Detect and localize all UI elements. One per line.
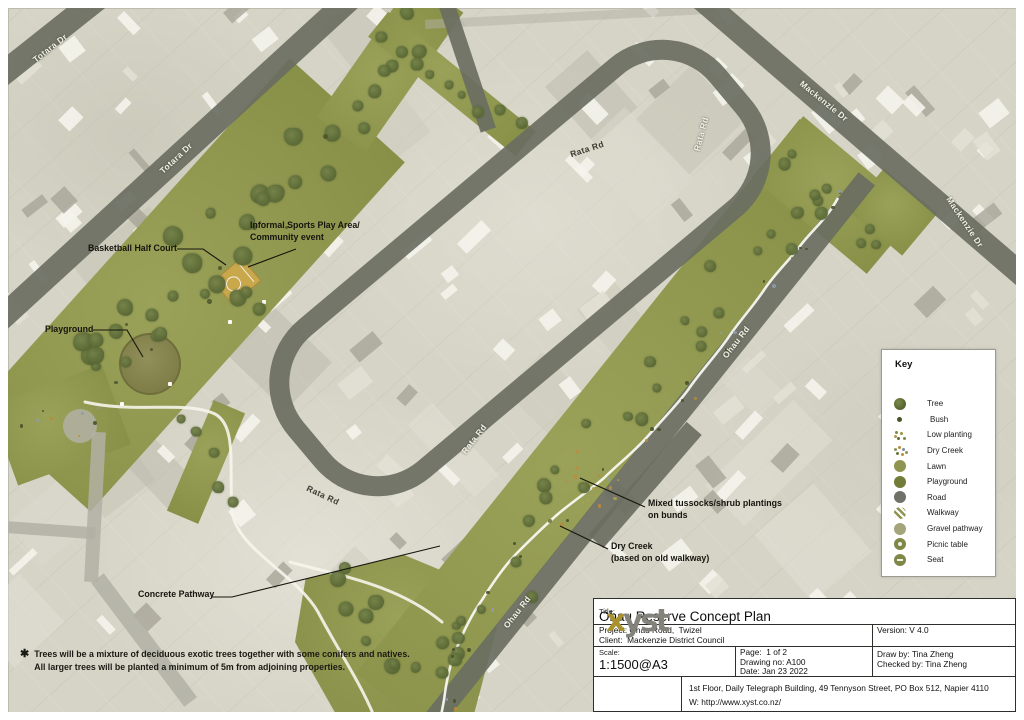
annotation-tussocks: Mixed tussocks/shrub plantingson bunds <box>648 498 782 521</box>
tree <box>324 125 341 142</box>
tree-notes: ✱ Trees will be a mixture of deciduous e… <box>20 648 410 674</box>
low-planting-speck <box>42 410 44 412</box>
tree <box>680 316 690 326</box>
tree <box>359 122 371 134</box>
tussock-speck <box>609 486 612 489</box>
tree <box>788 150 797 159</box>
tussock-speck <box>617 479 619 481</box>
key-row-gravel: Gravel pathway <box>893 521 991 537</box>
key-row-picnic: Picnic table <box>893 536 991 552</box>
tree <box>871 240 881 250</box>
tree <box>436 666 449 679</box>
tree <box>212 481 224 493</box>
tree <box>177 415 186 424</box>
key-label: Lawn <box>927 462 946 471</box>
key-label: Seat <box>927 555 943 564</box>
frame-bottom <box>0 712 1024 720</box>
tree <box>256 192 270 206</box>
key-row-bush: Bush <box>893 412 991 428</box>
tree <box>778 158 791 171</box>
creek-speck <box>452 648 455 651</box>
creek-speck <box>805 248 807 250</box>
key-label: Road <box>927 493 946 502</box>
tussock-speck <box>574 475 577 478</box>
walkway-icon <box>894 507 906 519</box>
tree <box>516 117 528 129</box>
key-panel: Key Tree Bush Low planting Dry Creek Law… <box>881 349 996 577</box>
tree <box>473 106 485 118</box>
tree <box>635 413 649 427</box>
tree <box>233 246 252 265</box>
tussock-speck <box>576 467 579 470</box>
company-address: 1st Floor, Daily Telegraph Building, 49 … <box>689 684 989 694</box>
creek-speck <box>763 280 766 283</box>
tree <box>396 46 408 58</box>
creek-speck <box>446 698 449 701</box>
divider <box>681 676 682 713</box>
key-title: Key <box>895 359 912 370</box>
tree <box>452 631 464 643</box>
annotation-basketball: Basketball Half Court <box>88 243 177 255</box>
creek-speck <box>453 699 457 703</box>
tree <box>436 636 450 650</box>
key-label: Gravel pathway <box>927 524 983 533</box>
key-label: Bush <box>930 415 948 424</box>
creek-speck <box>467 648 471 652</box>
frame-top <box>0 0 1024 8</box>
tussock-speck <box>576 450 579 453</box>
tree <box>358 608 373 623</box>
key-row-dry-creek: Dry Creek <box>893 443 991 459</box>
asterisk-icon: ✱ <box>20 648 29 674</box>
creek-speck <box>831 206 834 209</box>
bush-icon <box>897 417 902 422</box>
tree <box>856 238 866 248</box>
creek-speck <box>602 468 604 470</box>
key-label: Dry Creek <box>927 446 963 455</box>
tree <box>578 482 590 494</box>
lawn-icon <box>894 460 906 472</box>
key-label: Low planting <box>927 430 972 439</box>
creek-speck <box>454 707 457 710</box>
low-planting-speck <box>97 407 99 409</box>
creek-speck <box>681 399 684 402</box>
tree <box>766 230 775 239</box>
tree <box>120 357 131 368</box>
tree <box>361 636 371 646</box>
note-line-1: Trees will be a mixture of deciduous exo… <box>34 648 409 661</box>
tree <box>538 478 552 492</box>
checked-by-field: Checked by: Tina Zheng <box>877 660 967 670</box>
picnic-table-icon <box>894 538 906 550</box>
road-icon <box>894 491 906 503</box>
tree <box>400 6 414 20</box>
key-label: Walkway <box>927 508 959 517</box>
tree <box>644 356 656 368</box>
tussock-speck <box>596 494 598 496</box>
annotation-informal-sports: Informal Sports Play Area/Community even… <box>250 220 360 243</box>
tree <box>330 571 346 587</box>
low-planting-icon <box>894 429 906 441</box>
tussock-speck <box>566 480 568 482</box>
creek-speck <box>548 519 552 523</box>
frame-left <box>0 0 8 720</box>
bush <box>207 299 212 304</box>
creek-speck <box>650 427 654 431</box>
low-planting-speck <box>81 412 84 415</box>
frame-right <box>1016 0 1024 720</box>
annotation-dry-creek: Dry Creek(based on old walkway) <box>611 541 709 564</box>
creek-speck <box>519 555 522 558</box>
creek-speck <box>772 284 776 288</box>
tree <box>117 299 133 315</box>
tree <box>109 324 123 338</box>
tree <box>410 57 423 70</box>
playground-icon <box>894 476 906 488</box>
tree <box>338 602 353 617</box>
seat-marker <box>228 320 232 324</box>
tree <box>456 616 466 626</box>
scale-label: Scale: <box>599 648 620 657</box>
divider <box>594 646 1015 647</box>
tree <box>494 105 505 116</box>
bush <box>323 134 328 139</box>
low-planting-speck <box>50 417 53 420</box>
key-row-road: Road <box>893 490 991 506</box>
version-field: Version: V 4.0 <box>877 626 929 636</box>
tree <box>289 175 303 189</box>
key-row-seat: Seat <box>893 552 991 568</box>
tree <box>810 190 821 201</box>
key-row-playground: Playground <box>893 474 991 490</box>
tussock-speck <box>587 499 590 502</box>
dry-creek-icon <box>894 445 906 457</box>
key-rows: Tree Bush Low planting Dry Creek Lawn Pl… <box>893 396 991 568</box>
key-row-lawn: Lawn <box>893 458 991 474</box>
tree <box>581 419 591 429</box>
tree <box>205 207 216 218</box>
tussock-speck <box>582 501 584 503</box>
key-row-low-planting: Low planting <box>893 427 991 443</box>
tree <box>146 308 159 321</box>
title-block: Title: Ohau Reserve Concept Plan Project… <box>593 598 1016 712</box>
annotation-concrete-pathway: Concrete Pathway <box>138 589 214 601</box>
creek-speck <box>799 247 801 249</box>
scale-value: 1:1500@A3 <box>599 657 668 672</box>
low-planting-speck <box>20 424 24 428</box>
seat-icon <box>894 554 906 566</box>
key-row-tree: Tree <box>893 396 991 412</box>
tree <box>445 80 454 89</box>
note-line-2: All larger trees will be planted a minim… <box>34 661 409 674</box>
key-label: Tree <box>927 399 943 408</box>
gravel-pathway-icon <box>894 523 906 535</box>
company-website: W: http://www.xyst.co.nz/ <box>689 698 781 708</box>
key-label: Picnic table <box>927 540 968 549</box>
tree <box>191 426 202 437</box>
tree-icon <box>894 398 906 410</box>
creek-speck <box>560 523 564 527</box>
concept-plan-page: Totara Dr Totara Dr Rata Rd Rata Rd Rata… <box>0 0 1024 720</box>
tree <box>714 308 725 319</box>
divider <box>872 624 873 676</box>
tree <box>652 384 661 393</box>
tree <box>623 412 633 422</box>
tussock-speck <box>613 497 617 501</box>
seat-marker <box>168 382 172 386</box>
divider <box>735 646 736 676</box>
tree <box>209 448 220 459</box>
tree <box>167 291 178 302</box>
tree <box>821 183 832 194</box>
creek-speck <box>486 591 489 594</box>
tree <box>786 243 798 255</box>
annotation-playground: Playground <box>45 324 93 336</box>
tree <box>200 289 210 299</box>
tree <box>511 556 522 567</box>
tussock-speck <box>561 462 564 465</box>
creek-speck <box>759 289 761 291</box>
xyst-logo: xyst <box>606 603 667 639</box>
tree <box>425 70 435 80</box>
key-row-walkway: Walkway <box>893 505 991 521</box>
seat-marker <box>120 402 124 406</box>
tree <box>865 224 875 234</box>
tree <box>704 260 716 272</box>
tree <box>154 327 168 341</box>
bush <box>218 266 222 270</box>
creek-speck <box>513 542 516 545</box>
key-label: Playground <box>927 477 967 486</box>
date-field: Date: Jan 23 2022 <box>740 667 808 677</box>
tree <box>228 497 239 508</box>
